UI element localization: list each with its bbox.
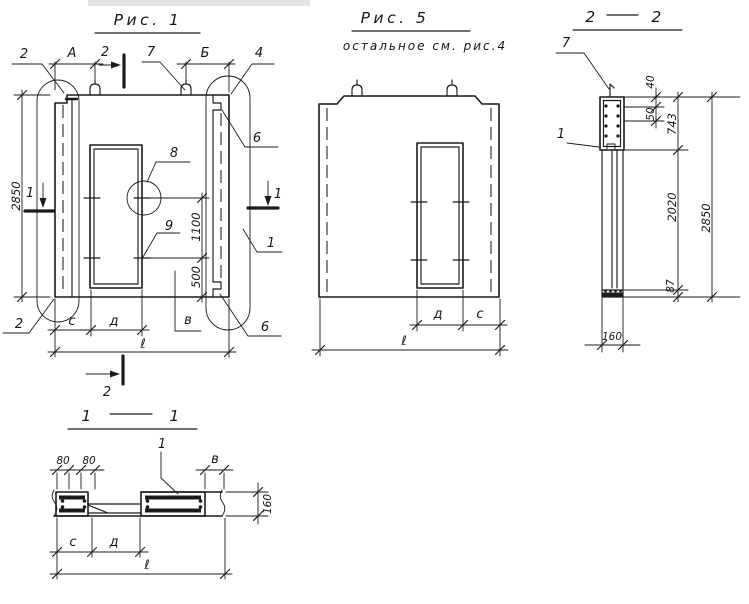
fig1-dim-l: ℓ xyxy=(139,337,145,352)
fig1-label-v: в xyxy=(184,313,192,328)
fig1-callout4-label: 4 xyxy=(255,46,263,61)
fig1-callout7-leader xyxy=(142,62,185,90)
fig1-callout9-label: 9 xyxy=(165,219,173,234)
fig1-callout1-right-label: 1 xyxy=(267,236,275,251)
sec11-dim-160: 160 xyxy=(262,494,274,514)
fig1-dim-a-label: А xyxy=(67,46,77,61)
fig1-top-dim-lines xyxy=(49,62,235,92)
fig1-section1-left-label: 1 xyxy=(26,186,34,201)
fig1-section2-bottom-label: 2 xyxy=(103,385,111,400)
fig5-panel-outline xyxy=(319,96,499,297)
fig1-callout1-right-leader xyxy=(243,229,282,252)
fig5-dim-l: ℓ xyxy=(400,334,406,349)
fig1-callout6-bottom-label: 6 xyxy=(261,320,269,335)
sec11-title-right: 1 xyxy=(169,407,182,425)
fig1-callout2-top-label: 2 xyxy=(20,47,28,62)
fig1-callout8-leader xyxy=(147,162,190,182)
sec22-dim-160-lines xyxy=(585,298,640,352)
fig5-lifting-hook-right xyxy=(447,80,457,96)
sec22-title-right: 2 xyxy=(651,8,664,26)
sec22-callout7-leader xyxy=(556,53,609,89)
sec11-dimension-ticks xyxy=(53,466,263,579)
sec22-wall-lines xyxy=(602,150,623,290)
fig1-title: Рис. 1 xyxy=(114,11,183,29)
fig1-callout8-label: 8 xyxy=(170,146,178,161)
sec22-dim-743: 743 xyxy=(665,113,679,135)
fig1-section2-top-label: 2 xyxy=(101,45,109,60)
sec11-dim-c: с xyxy=(69,535,76,550)
sec22-callout1-leader xyxy=(567,143,599,147)
fig1-opening-inner xyxy=(94,149,138,284)
sec22-sill-fill xyxy=(602,293,623,298)
fig1-dim-c: с xyxy=(68,314,75,329)
sec11-web-lines xyxy=(88,504,141,513)
fig1-dim-2850: 2850 xyxy=(9,181,23,210)
fig5-subtitle: остальное см. рис.4 xyxy=(343,39,507,53)
fig5-lifting-hook-left xyxy=(352,80,362,96)
sec11-dim-cd-lines xyxy=(50,518,148,557)
fig5-dim-dc-lines xyxy=(410,290,507,331)
fig5-opening-inner xyxy=(421,147,459,284)
fig1-callout4-leader xyxy=(231,64,274,94)
figure-5: Рис. 5 остальное см. рис.4 д с ℓ xyxy=(312,9,508,356)
sec11-dim-d: д xyxy=(109,535,119,550)
fig1-dim-b-label: Б xyxy=(201,46,210,61)
fig5-dim-d: д xyxy=(433,307,443,322)
sec22-dim-87: 87 xyxy=(665,279,677,293)
fig1-section2-top-arrowhead xyxy=(111,62,121,69)
fig5-embed-ticks xyxy=(411,202,469,260)
section-1-1: 1 1 1 80 80 в xyxy=(50,407,274,579)
sec11-callout1-label: 1 xyxy=(158,437,166,452)
fig1-dimension-ticks xyxy=(18,60,234,357)
fig1-lifting-hook-left xyxy=(90,80,100,95)
sec11-title-left: 1 xyxy=(81,407,94,425)
fig1-dim-d: д xyxy=(109,314,119,329)
sec11-right-box-rebar xyxy=(145,496,202,513)
fig1-callout2-bottom-leader xyxy=(3,299,54,333)
sec11-dim-l-lines xyxy=(50,518,232,579)
sec22-callout1-label: 1 xyxy=(557,127,565,142)
figure-1: Рис. 1 А Б 2 2 xyxy=(3,11,282,400)
sec22-dim-2020: 2020 xyxy=(665,192,679,221)
fig1-callout2-top-leader xyxy=(12,64,64,93)
fig5-dim-c: с xyxy=(476,307,483,322)
fig1-section1-left-arrowhead xyxy=(40,198,47,208)
fig1-dim-1100: 1100 xyxy=(189,212,203,241)
fig1-callout7-label: 7 xyxy=(147,45,156,60)
fig5-opening-outer xyxy=(417,143,463,288)
drawing-canvas: Рис. 1 А Б 2 2 xyxy=(0,0,749,604)
sec11-callout1-leader xyxy=(161,452,178,494)
section-2-2: 2 2 7 1 40 50 743 2020 2850 xyxy=(556,8,740,352)
sec11-dim-l: ℓ xyxy=(143,558,149,573)
sec22-dim-lines xyxy=(623,88,740,302)
sec22-hook-stub xyxy=(610,84,614,97)
sec22-dim-2850: 2850 xyxy=(699,203,713,232)
fig1-dim-500: 500 xyxy=(189,266,203,288)
sec11-left-box-rebar xyxy=(59,496,86,513)
fig1-callout9-leader xyxy=(143,233,180,257)
fig1-section1-right-arrowhead xyxy=(265,196,272,206)
sec22-dim-40: 40 xyxy=(645,75,657,89)
fig5-dimension-ticks xyxy=(316,321,505,355)
sec11-dim-80a: 80 xyxy=(56,455,70,467)
technical-drawing: Рис. 1 А Б 2 2 xyxy=(0,0,749,604)
fig1-callout6-top-label: 6 xyxy=(253,131,261,146)
sec22-callout7-label: 7 xyxy=(562,36,571,51)
fig1-callout2-bottom-label: 2 xyxy=(15,317,23,332)
sec22-title-left: 2 xyxy=(585,8,598,26)
fig1-right-inner-line-with-notches xyxy=(213,95,221,297)
fig1-opening-outer xyxy=(90,145,142,288)
fig1-section2-bottom-arrowhead xyxy=(110,371,120,378)
sec11-dim-80-lines xyxy=(50,470,104,489)
scan-artifact xyxy=(88,0,310,6)
sec11-dim-80b: 80 xyxy=(82,455,96,467)
sec22-dim-50: 50 xyxy=(645,107,657,121)
fig5-title: Рис. 5 xyxy=(361,9,430,27)
sec22-rebar-dots xyxy=(604,104,619,137)
fig1-section1-right-label: 1 xyxy=(274,187,282,202)
sec11-dim-v: в xyxy=(211,452,219,467)
